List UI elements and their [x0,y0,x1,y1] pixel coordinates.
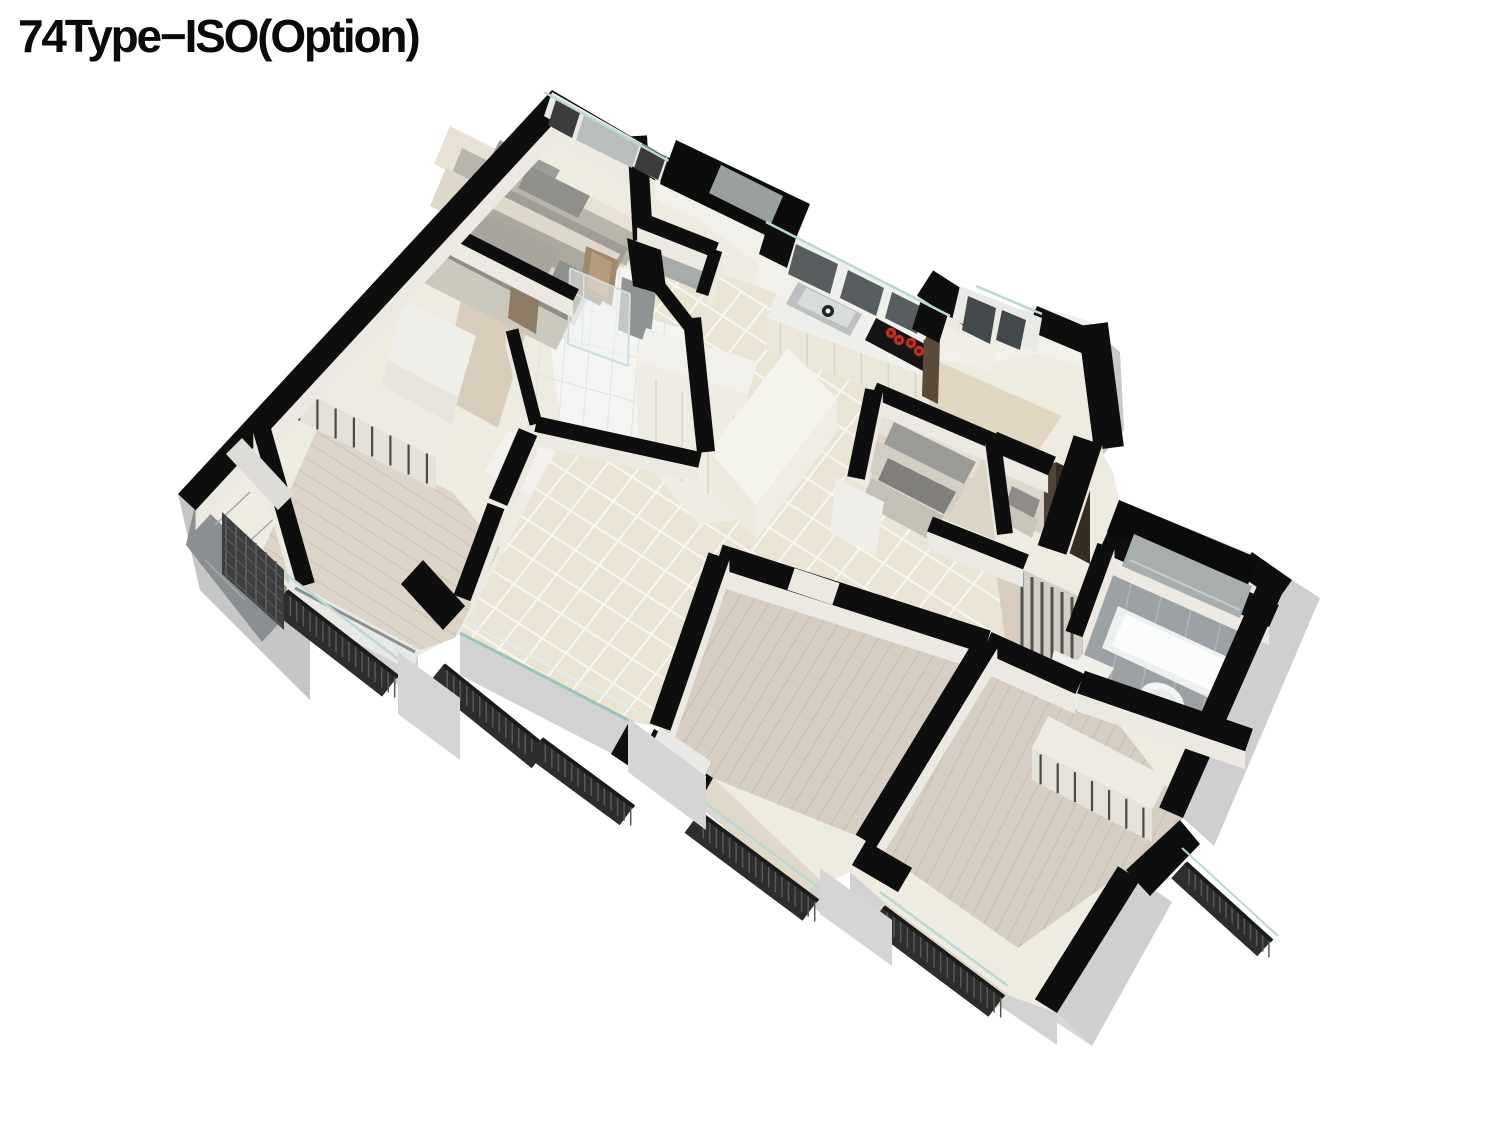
svg-text:74Type−ISO(Option): 74Type−ISO(Option) [18,10,419,62]
